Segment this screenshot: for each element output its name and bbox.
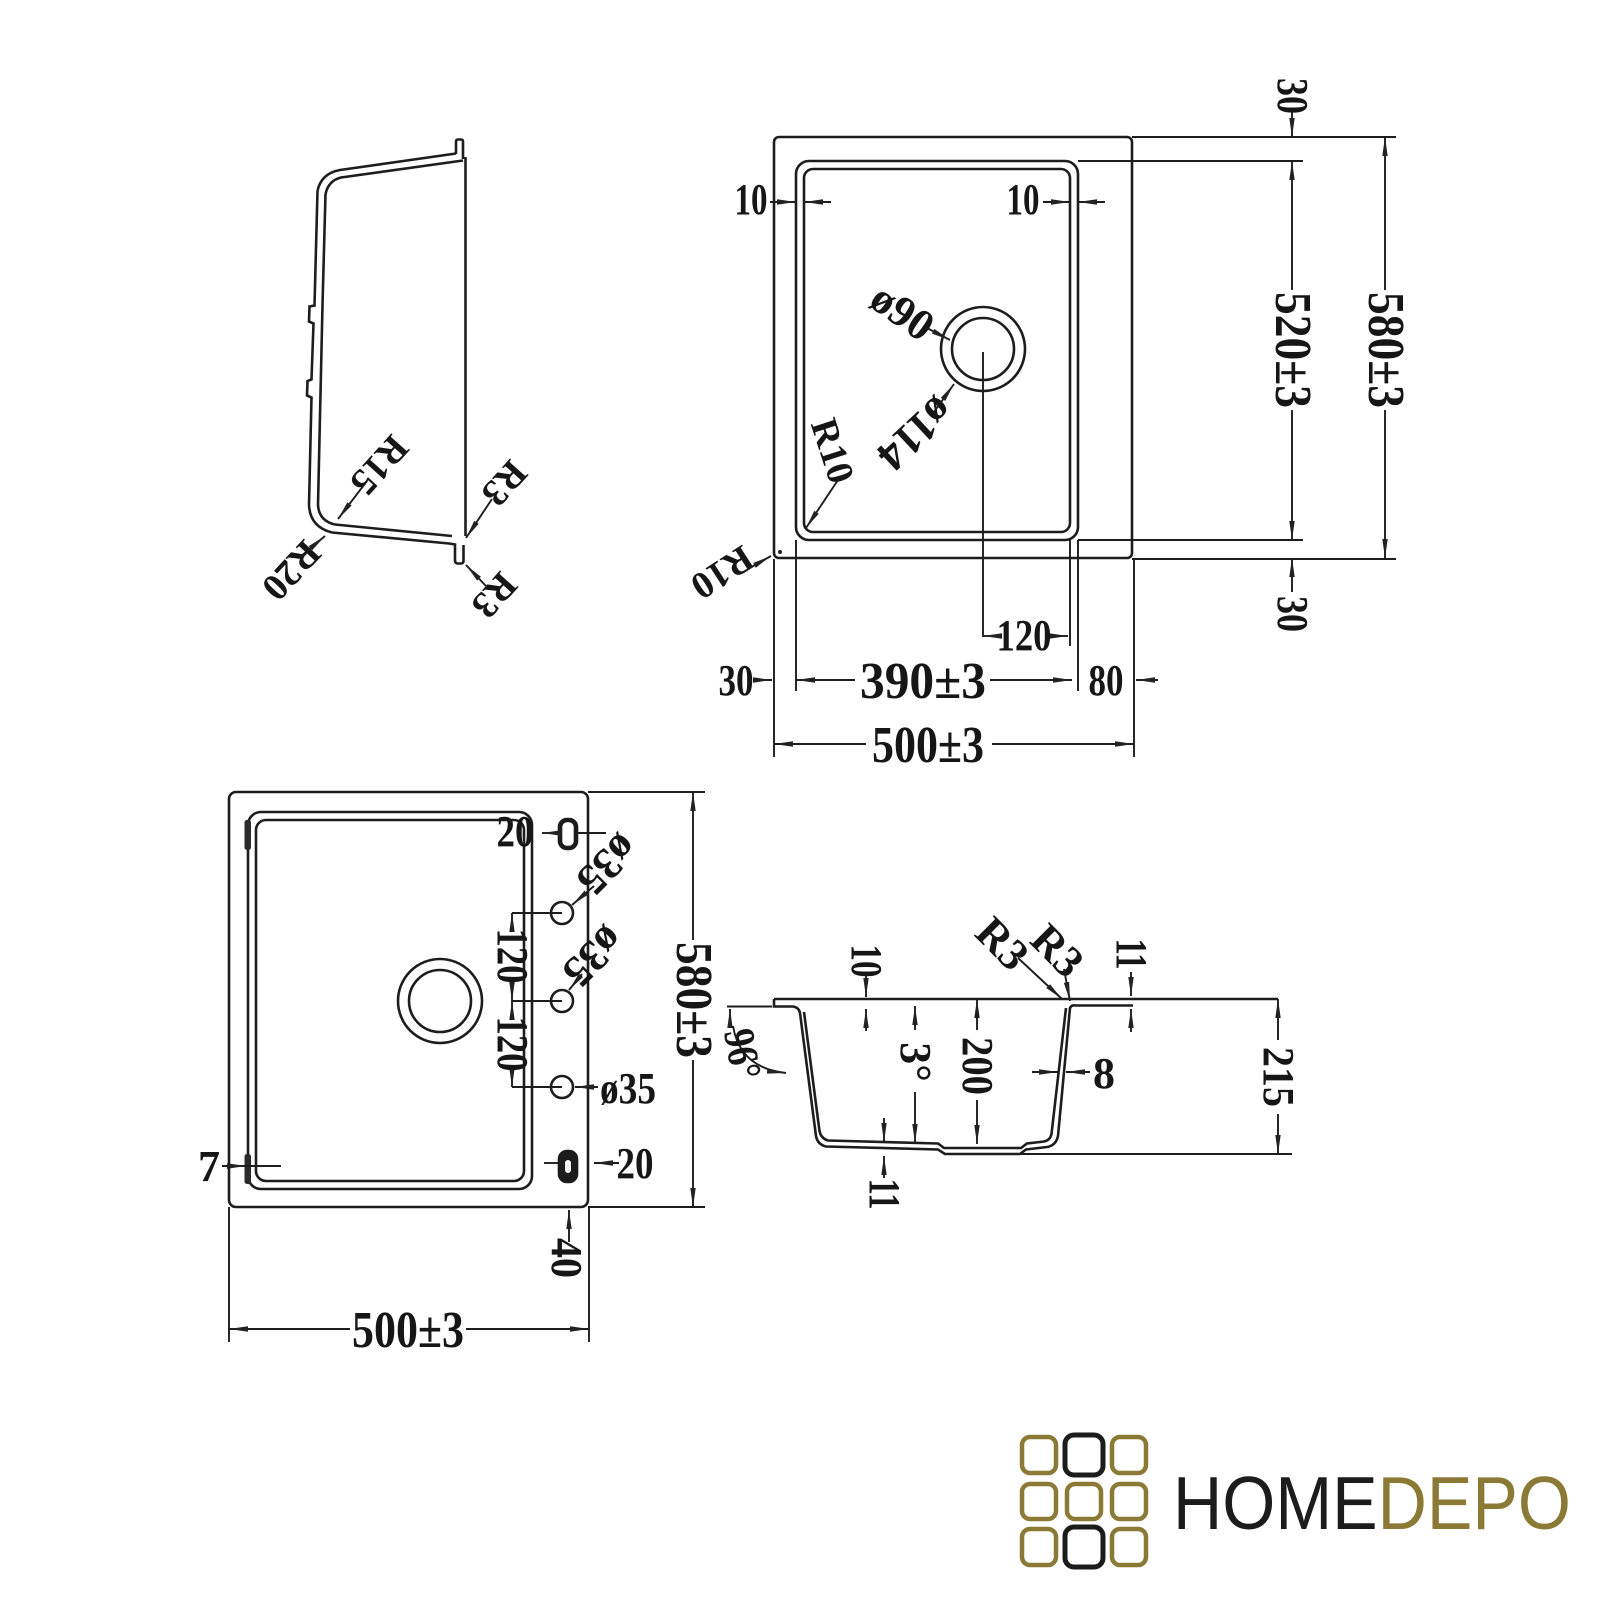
svg-text:10: 10 <box>842 945 891 978</box>
svg-text:580±3: 580±3 <box>665 942 722 1058</box>
svg-text:30: 30 <box>1268 596 1317 632</box>
svg-text:96°: 96° <box>714 1025 771 1083</box>
svg-text:120: 120 <box>488 1017 537 1072</box>
svg-text:215: 215 <box>1254 1047 1303 1107</box>
svg-text:120: 120 <box>488 929 537 984</box>
svg-text:30: 30 <box>719 656 754 705</box>
svg-text:ø35: ø35 <box>600 1064 656 1113</box>
svg-text:HOMEDEPO: HOMEDEPO <box>1173 1461 1571 1545</box>
svg-text:80: 80 <box>1089 656 1124 705</box>
svg-text:500±3: 500±3 <box>872 717 984 774</box>
svg-text:10: 10 <box>735 175 768 224</box>
svg-text:7: 7 <box>198 1142 220 1191</box>
svg-text:10: 10 <box>1007 175 1040 224</box>
svg-text:520±3: 520±3 <box>1264 292 1321 408</box>
svg-text:200: 200 <box>953 1037 1002 1095</box>
svg-text:500±3: 500±3 <box>352 1302 464 1359</box>
svg-text:11: 11 <box>1107 939 1156 970</box>
svg-text:30: 30 <box>1268 78 1317 114</box>
svg-text:8: 8 <box>1093 1049 1115 1098</box>
svg-text:40: 40 <box>542 1238 591 1278</box>
svg-text:11: 11 <box>860 1179 909 1210</box>
svg-text:120: 120 <box>997 611 1052 660</box>
svg-text:20: 20 <box>497 807 534 856</box>
svg-text:390±3: 390±3 <box>860 653 986 710</box>
svg-text:20: 20 <box>617 1139 654 1188</box>
svg-text:3°: 3° <box>891 1042 940 1082</box>
svg-text:580±3: 580±3 <box>1357 292 1414 408</box>
